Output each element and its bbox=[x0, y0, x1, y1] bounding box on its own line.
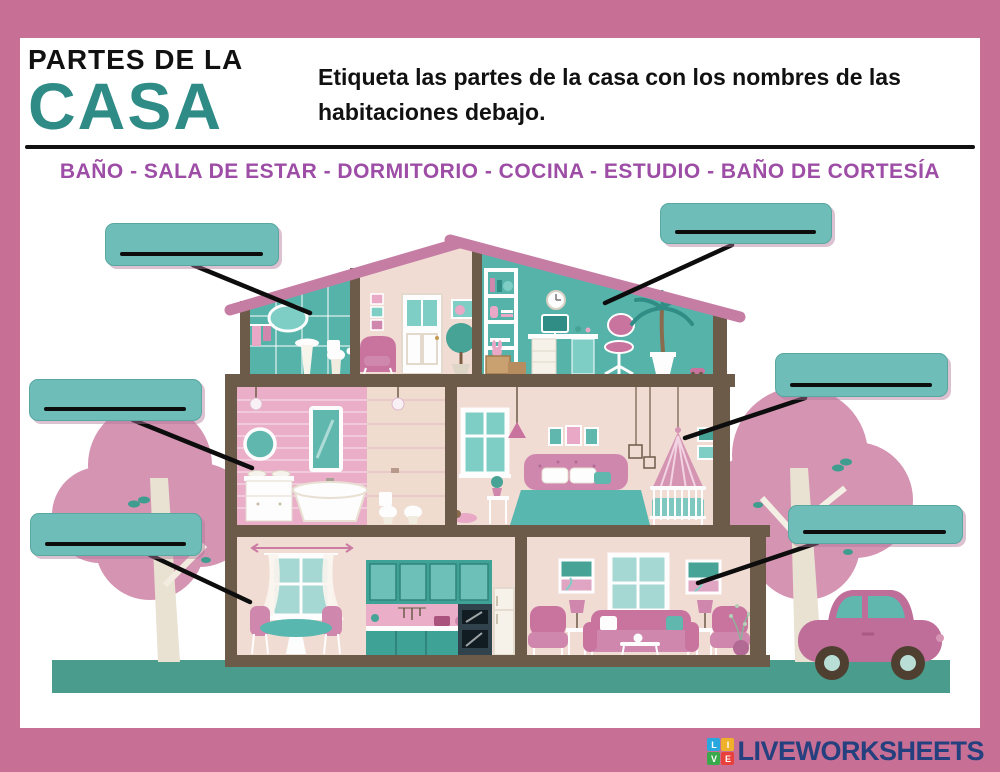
instructions-text: Etiqueta las partes de la casa con los n… bbox=[318, 60, 973, 129]
logo-text: LIVEWORKSHEETS bbox=[737, 736, 984, 767]
answer-box-kitchen[interactable] bbox=[30, 513, 202, 556]
write-line bbox=[790, 383, 932, 387]
answer-box-living-room[interactable] bbox=[788, 505, 963, 544]
liveworksheets-grid-icon: L I V E bbox=[707, 738, 734, 765]
logo-tile-i: I bbox=[721, 738, 734, 751]
header-divider bbox=[25, 145, 975, 149]
write-line bbox=[44, 407, 186, 411]
write-line bbox=[45, 542, 186, 546]
write-line bbox=[803, 530, 947, 534]
logo-tile-v: V bbox=[707, 752, 720, 765]
answer-box-bathroom[interactable] bbox=[29, 379, 202, 421]
write-line bbox=[675, 230, 816, 234]
logo-tile-l: L bbox=[707, 738, 720, 751]
answer-box-attic-bathroom[interactable] bbox=[105, 223, 279, 266]
title-line2: CASA bbox=[28, 76, 243, 137]
logo-tile-e: E bbox=[721, 752, 734, 765]
liveworksheets-logo: L I V E LIVEWORKSHEETS bbox=[707, 736, 984, 767]
answer-box-bedroom[interactable] bbox=[775, 353, 948, 397]
word-bank: BAÑO - SALA DE ESTAR - DORMITORIO - COCI… bbox=[20, 160, 980, 184]
page-title: PARTES DE LA CASA bbox=[28, 44, 243, 137]
write-line bbox=[120, 252, 263, 256]
answer-box-study[interactable] bbox=[660, 203, 832, 244]
